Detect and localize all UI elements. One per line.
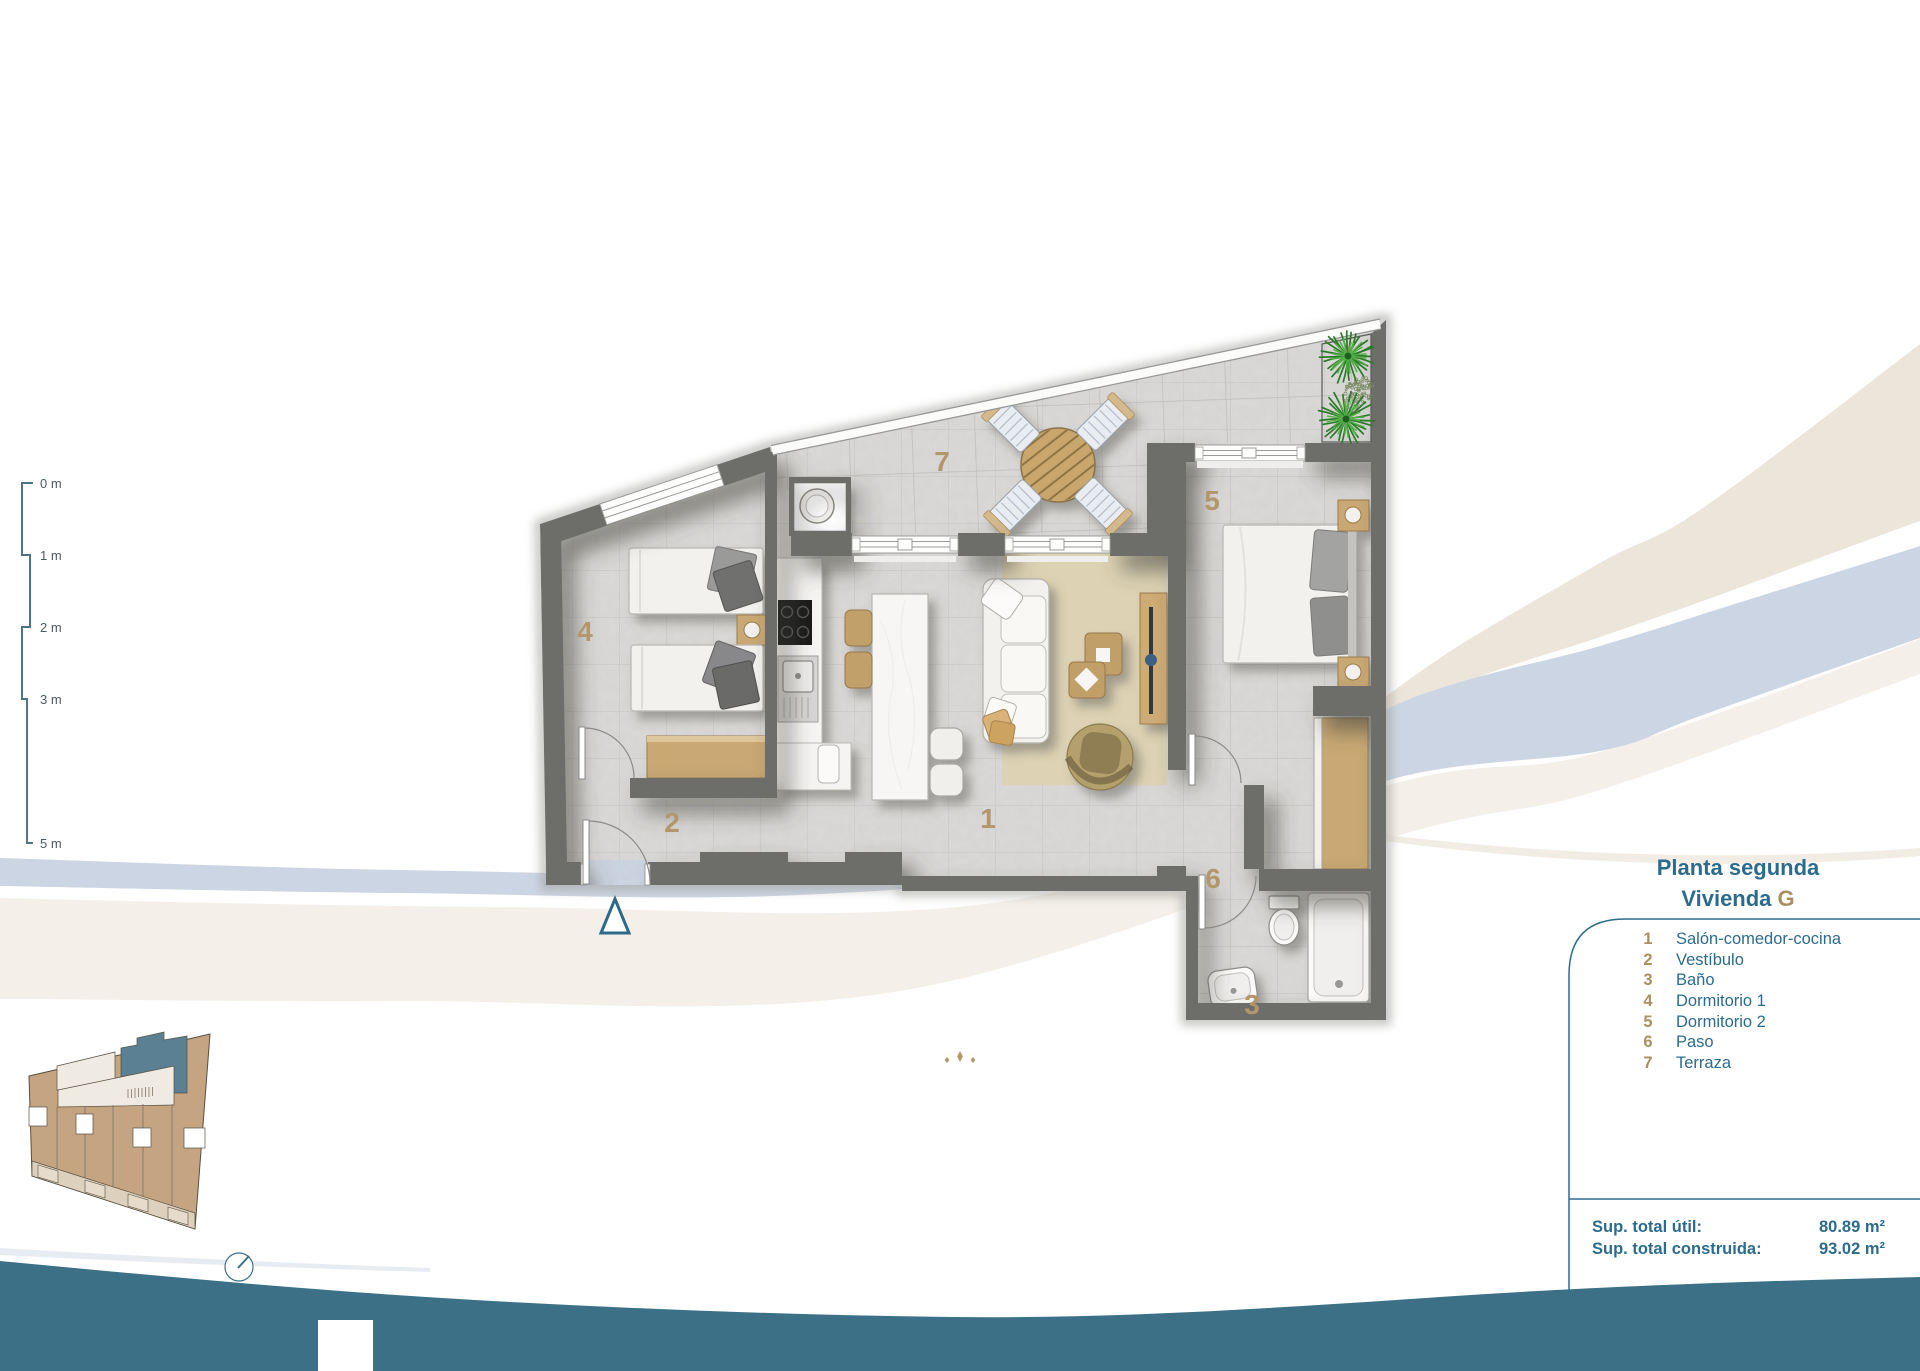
svg-text:2 m: 2 m <box>40 620 62 635</box>
svg-text:6: 6 <box>1205 863 1221 894</box>
svg-text:6: 6 <box>1643 1033 1652 1051</box>
svg-text:93.02 m²: 93.02 m² <box>1819 1240 1886 1258</box>
svg-text:Dormitorio 2: Dormitorio 2 <box>1676 1013 1766 1031</box>
svg-text:1: 1 <box>1643 930 1652 948</box>
svg-text:Planta segunda: Planta segunda <box>1657 855 1820 880</box>
svg-text:5 m: 5 m <box>40 836 62 851</box>
svg-text:3: 3 <box>1643 971 1652 989</box>
svg-text:Sup. total útil:: Sup. total útil: <box>1592 1218 1702 1236</box>
svg-text:2: 2 <box>1643 951 1652 969</box>
svg-text:3 m: 3 m <box>40 692 62 707</box>
svg-text:Sup. total construida:: Sup. total construida: <box>1592 1240 1762 1258</box>
svg-text:Dormitorio 1: Dormitorio 1 <box>1676 992 1766 1010</box>
svg-text:80.89 m²: 80.89 m² <box>1819 1218 1886 1236</box>
svg-text:5: 5 <box>1643 1013 1652 1031</box>
svg-text:3: 3 <box>1244 989 1260 1020</box>
svg-text:4: 4 <box>577 616 593 647</box>
svg-text:7: 7 <box>934 446 950 477</box>
svg-text:Vivienda G: Vivienda G <box>1681 886 1794 911</box>
svg-text:7: 7 <box>1643 1054 1652 1072</box>
svg-text:1: 1 <box>980 803 996 834</box>
svg-text:Paso: Paso <box>1676 1033 1714 1051</box>
svg-text:5: 5 <box>1204 485 1220 516</box>
svg-text:Vestíbulo: Vestíbulo <box>1676 951 1744 969</box>
svg-text:4: 4 <box>1643 992 1653 1010</box>
svg-text:Salón-comedor-cocina: Salón-comedor-cocina <box>1676 930 1842 948</box>
svg-text:Baño: Baño <box>1676 971 1715 989</box>
svg-text:Terraza: Terraza <box>1676 1054 1732 1072</box>
svg-text:2: 2 <box>664 807 680 838</box>
svg-text:0 m: 0 m <box>40 476 62 491</box>
svg-text:1 m: 1 m <box>40 548 62 563</box>
